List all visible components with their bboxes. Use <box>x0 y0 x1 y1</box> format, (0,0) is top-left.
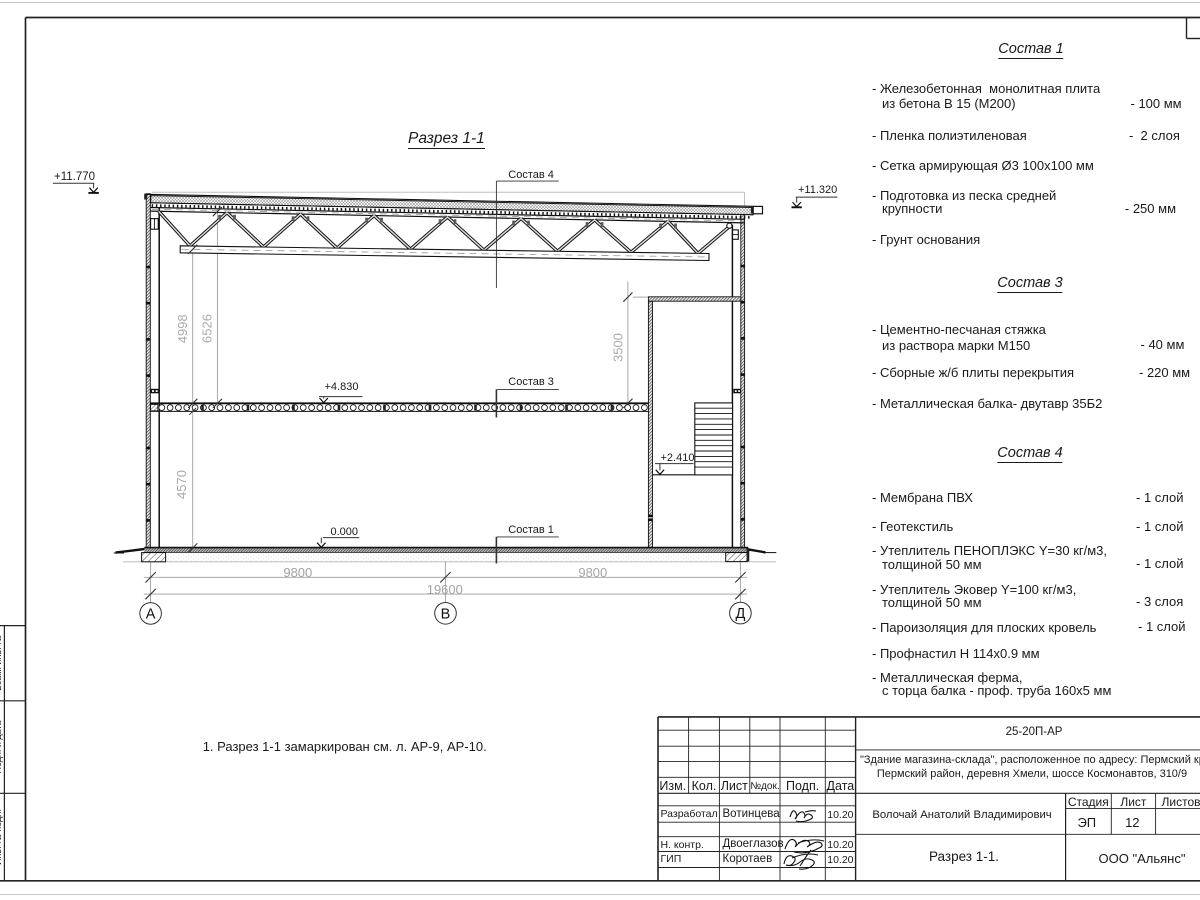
svg-text:В: В <box>441 606 451 622</box>
svg-text:4570: 4570 <box>174 470 189 499</box>
svg-text:Д: Д <box>735 606 745 622</box>
svg-text:Инв. № подл.: Инв. № подл. <box>0 809 3 865</box>
svg-text:Подп. и дата: Подп. и дата <box>0 720 3 773</box>
svg-text:Взам. инв. №: Взам. инв. № <box>0 635 3 691</box>
svg-text:А: А <box>146 606 156 622</box>
svg-text:6526: 6526 <box>200 314 215 343</box>
svg-text:3500: 3500 <box>610 333 625 362</box>
svg-text:4998: 4998 <box>175 314 190 343</box>
